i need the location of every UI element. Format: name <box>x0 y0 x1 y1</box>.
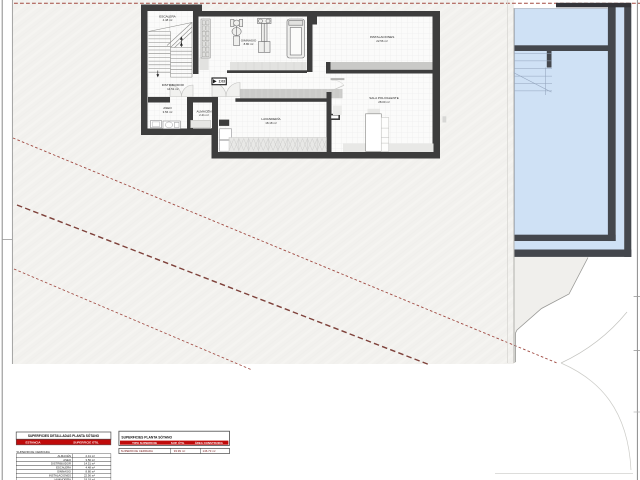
svg-text:2.03: 2.03 <box>219 80 226 84</box>
svg-text:146.73 m²: 146.73 m² <box>202 449 215 453</box>
svg-text:22.56 m²: 22.56 m² <box>376 39 387 43</box>
svg-text:2.41 m²: 2.41 m² <box>199 113 209 117</box>
svg-text:28.00 m²: 28.00 m² <box>378 100 389 104</box>
svg-text:SUPERFICIE CERRADA: SUPERFICIE CERRADA <box>16 450 50 454</box>
svg-text:SUPERFICIES DETALLADAS PLANTA: SUPERFICIES DETALLADAS PLANTA SÓTANO <box>28 433 100 438</box>
svg-text:93.99 m²: 93.99 m² <box>174 449 185 453</box>
svg-text:SUPERFICIES PLANTA SÓTANO: SUPERFICIES PLANTA SÓTANO <box>121 434 172 439</box>
svg-text:ÁREA CONSTRUIDA: ÁREA CONSTRUIDA <box>195 440 224 445</box>
svg-text:SUPERFICIE ÚTIL: SUPERFICIE ÚTIL <box>73 440 99 445</box>
svg-text:14.51 m²: 14.51 m² <box>167 87 178 91</box>
svg-text:18.18 m²: 18.18 m² <box>265 121 276 125</box>
svg-text:SUPERFICIE CERRADA: SUPERFICIE CERRADA <box>121 449 153 453</box>
svg-text:4.48 m²: 4.48 m² <box>163 18 173 22</box>
svg-text:SUP. ÚTIL: SUP. ÚTIL <box>171 440 185 445</box>
svg-text:ESTANCIA: ESTANCIA <box>25 441 41 445</box>
svg-text:TIPO SUPERFICIE: TIPO SUPERFICIE <box>132 441 157 445</box>
svg-text:8.80 m²: 8.80 m² <box>244 42 254 46</box>
svg-text:3.56 m²: 3.56 m² <box>163 110 173 114</box>
